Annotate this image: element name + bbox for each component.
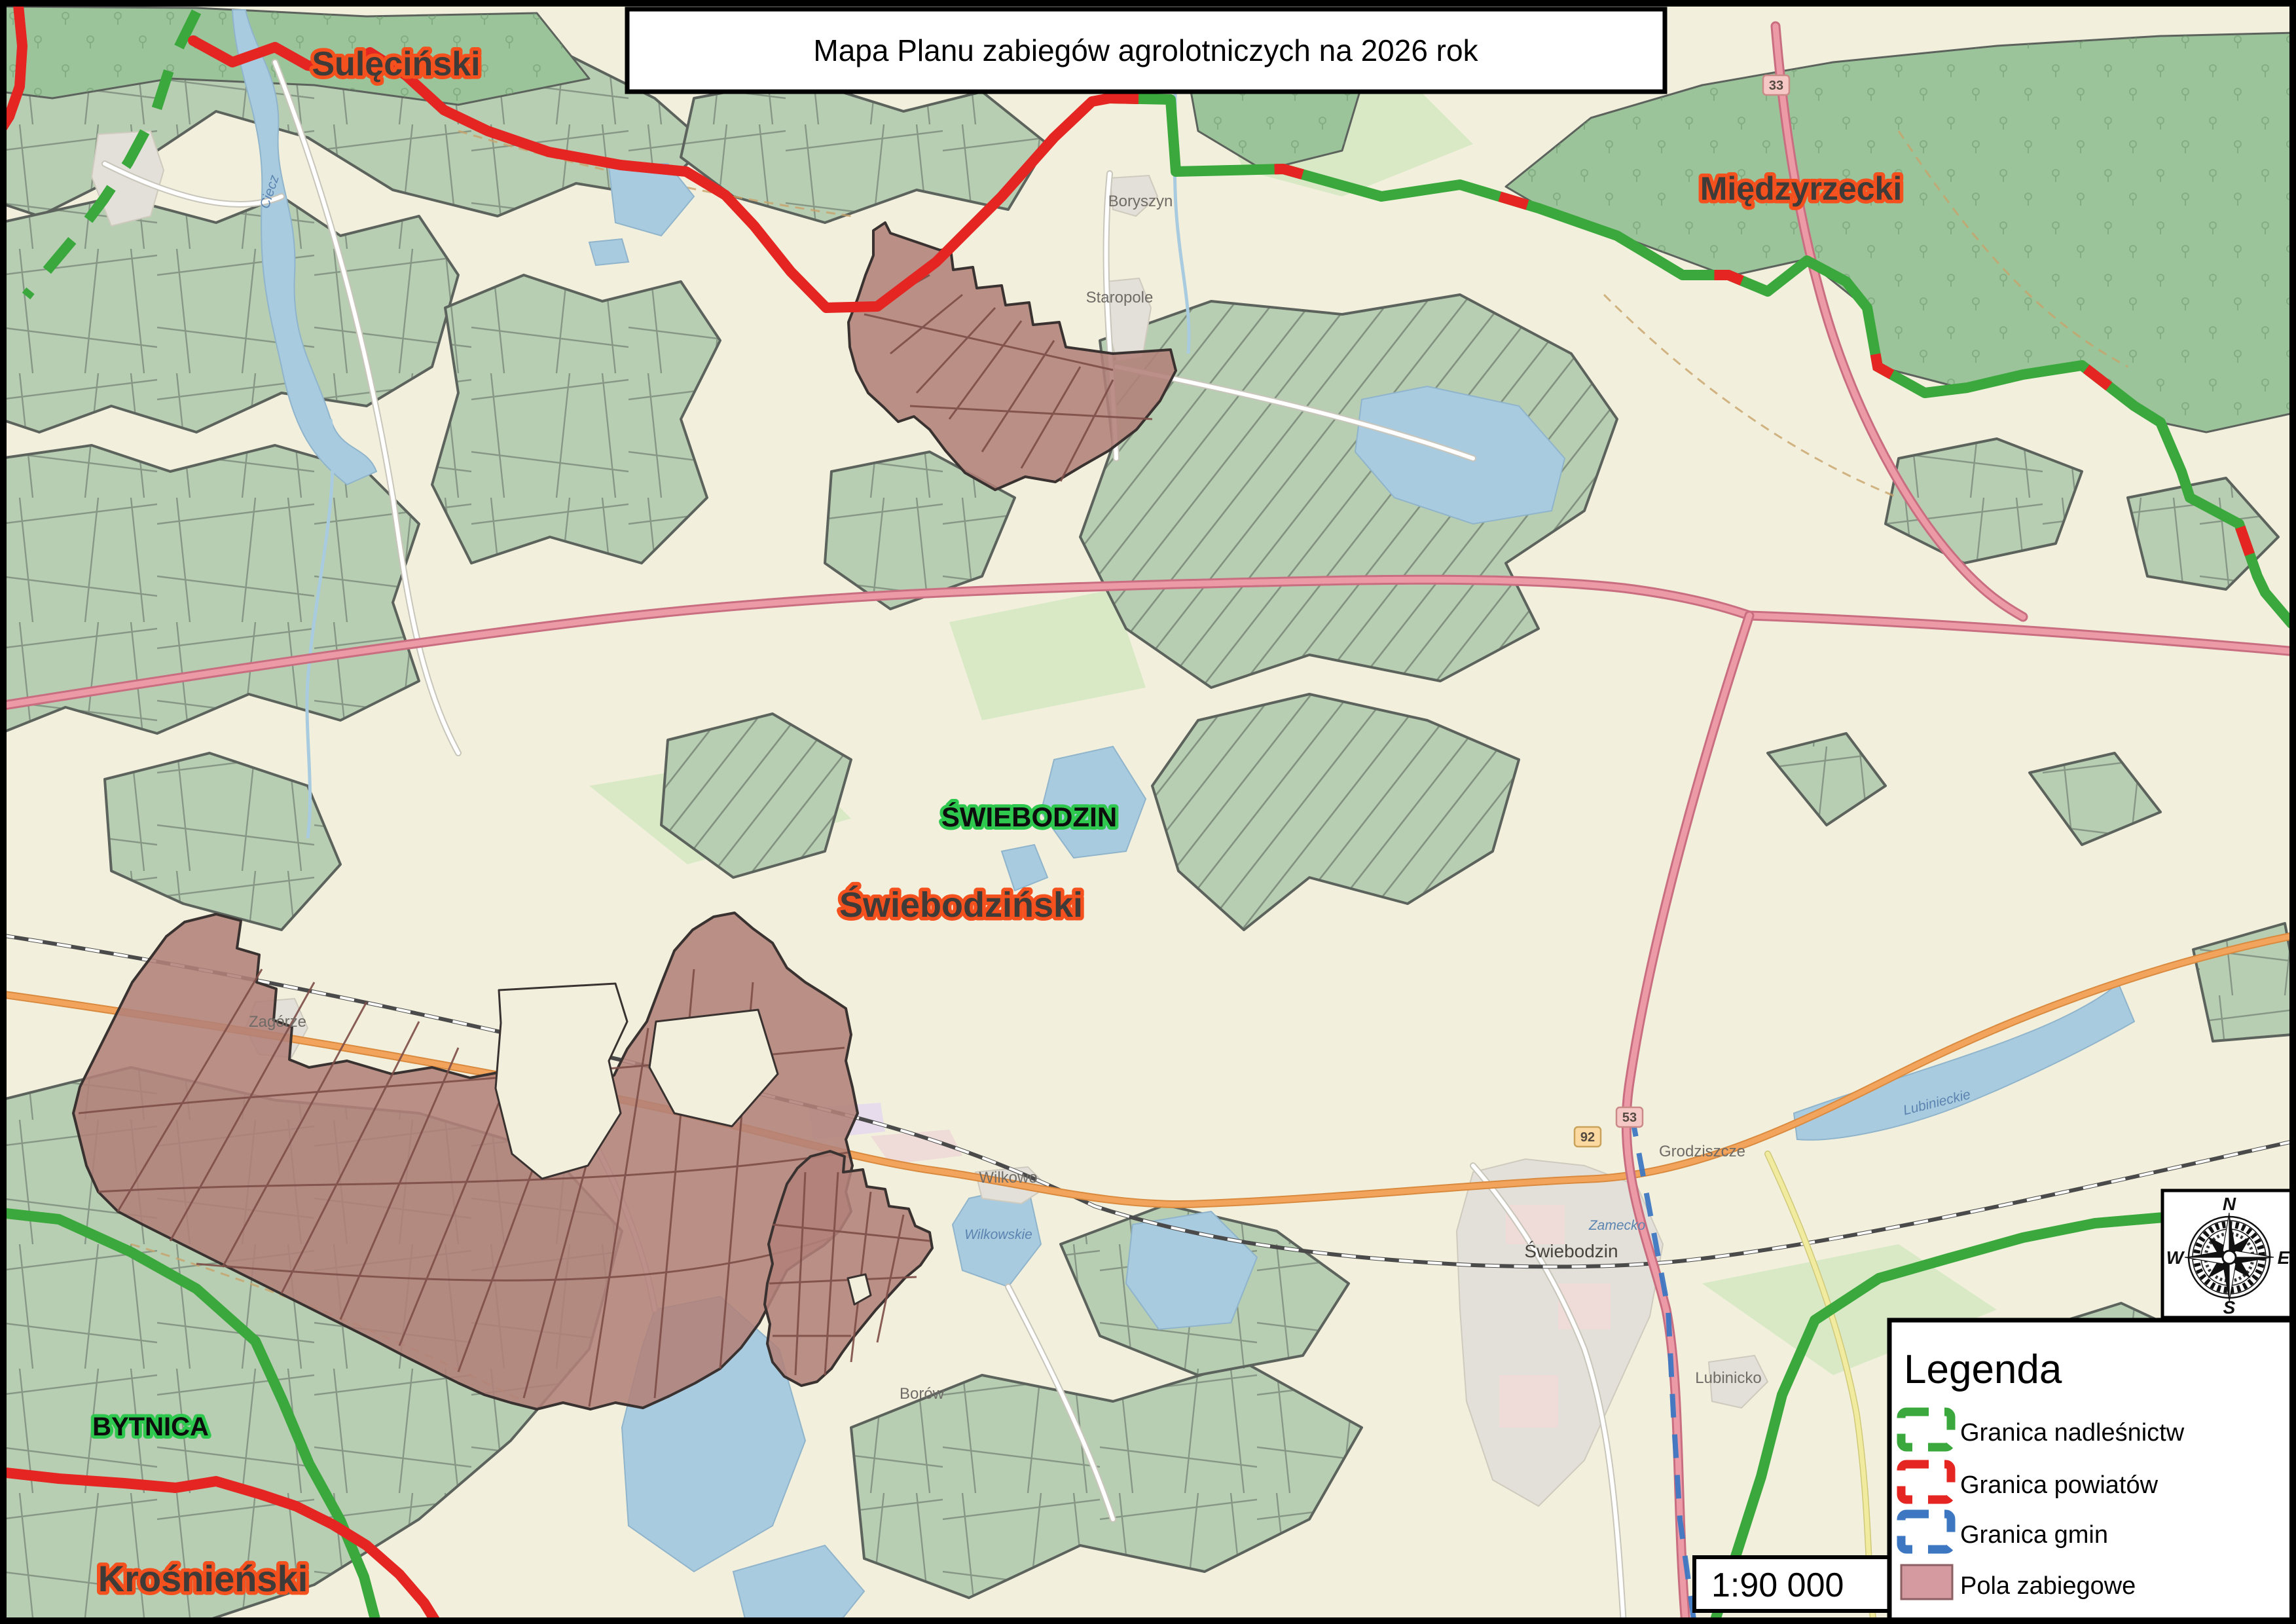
compass-letter-s: S (2223, 1297, 2236, 1318)
legend-label-nadlesnictwa: Granica nadleśnictw (1960, 1419, 2185, 1447)
village-label-wilkowo: Wilkowo (979, 1169, 1037, 1187)
legend-label-pola: Pola zabiegowe (1960, 1572, 2136, 1600)
road-shield-33: 33 (1763, 75, 1789, 95)
region-label-miedzyrzecki: Międzyrzecki (1700, 170, 1902, 207)
map-sheet: Boryszyn Staropole Zagórze Wilkowo Grodz… (0, 0, 2296, 1624)
village-label-lubinicko: Lubinicko (1695, 1369, 1761, 1387)
region-label-sulecinski: Sulęciński (312, 45, 480, 83)
map-title: Mapa Planu zabiegów agrolotniczych na 20… (813, 33, 1478, 67)
scale-box: 1:90 000 (1694, 1557, 1889, 1611)
water-label-zamecko: Zamecko (1588, 1218, 1646, 1233)
compass-letter-n: N (2223, 1194, 2236, 1214)
legend-label-powiaty: Granica powiatów (1960, 1471, 2159, 1499)
region-label-krosnienski: Krośnieński (98, 1558, 308, 1599)
village-label-zagorze: Zagórze (249, 1013, 306, 1031)
compass-box: N E S W (2162, 1190, 2296, 1318)
village-label-swiebodzin-town: Świebodzin (1524, 1240, 1618, 1261)
region-label-bytnica: BYTNICA (92, 1412, 209, 1441)
map-canvas: Boryszyn Staropole Zagórze Wilkowo Grodz… (0, 0, 2296, 1624)
legend-box: Legenda Granica nadleśnictw Granica powi… (1889, 1320, 2296, 1621)
legend-label-gminy: Granica gmin (1960, 1521, 2108, 1549)
legend-swatch-pola (1901, 1565, 1952, 1599)
svg-text:92: 92 (1580, 1130, 1595, 1145)
scale-text: 1:90 000 (1711, 1566, 1844, 1604)
title-box: Mapa Planu zabiegów agrolotniczych na 20… (627, 9, 1665, 92)
region-label-swiebodzinski: Świebodziński (839, 885, 1083, 925)
region-label-swiebodzin: ŚWIEBODZIN (941, 801, 1117, 832)
compass-letter-e: E (2278, 1247, 2291, 1268)
road-shield-92: 92 (1575, 1127, 1601, 1147)
village-label-grodziszcze: Grodziszcze (1659, 1143, 1745, 1160)
water-label-wilkowskie: Wilkowskie (964, 1227, 1032, 1242)
legend-title: Legenda (1904, 1347, 2062, 1392)
svg-text:33: 33 (1769, 79, 1783, 93)
village-label-boryszyn: Boryszyn (1108, 193, 1173, 210)
svg-text:53: 53 (1622, 1111, 1637, 1125)
compass-letter-w: W (2166, 1247, 2185, 1268)
village-label-staropole: Staropole (1086, 289, 1154, 306)
village-label-borow: Borów (900, 1385, 945, 1403)
road-shield-53: 53 (1616, 1107, 1643, 1127)
